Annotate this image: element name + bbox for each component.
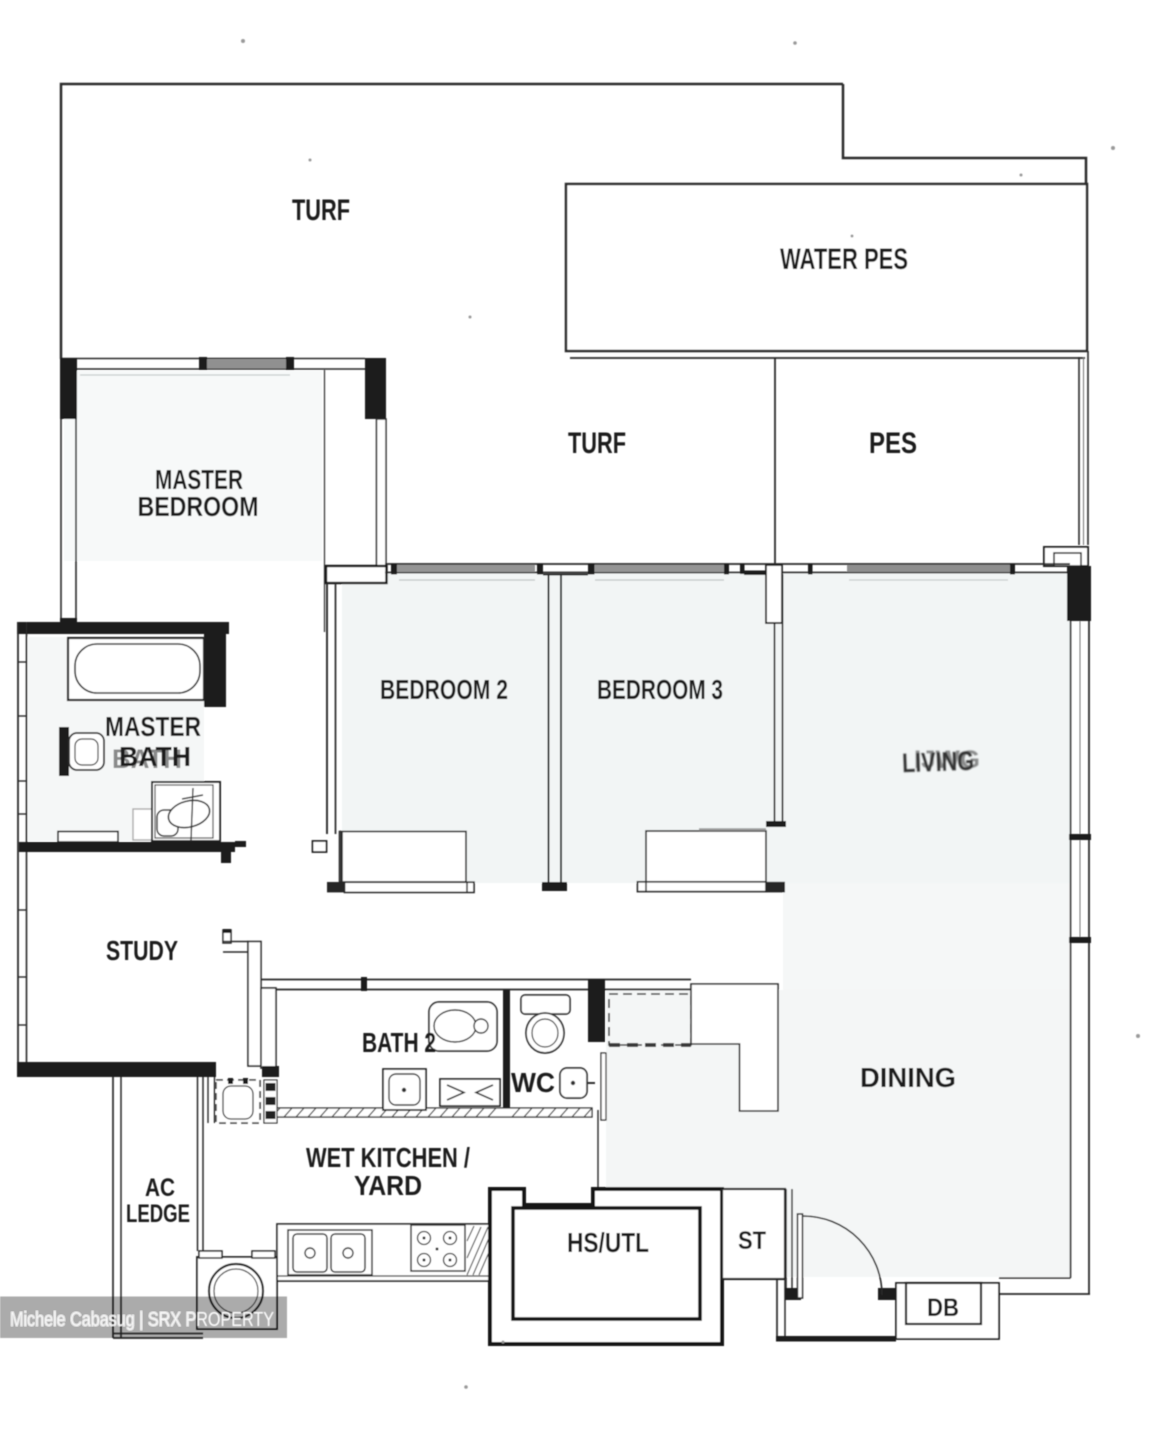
svg-text:AC: AC xyxy=(145,1174,175,1202)
svg-text:YARD: YARD xyxy=(354,1170,422,1201)
svg-text:MASTER: MASTER xyxy=(105,711,201,742)
svg-text:PES: PES xyxy=(869,427,917,460)
svg-text:WC: WC xyxy=(511,1067,555,1098)
svg-text:HS/UTL: HS/UTL xyxy=(567,1227,649,1258)
svg-text:BEDROOM: BEDROOM xyxy=(138,491,259,522)
svg-text:LEDGE: LEDGE xyxy=(126,1200,190,1228)
svg-text:BATH: BATH xyxy=(112,744,182,774)
svg-text:DINING: DINING xyxy=(860,1062,956,1093)
svg-text:WATER PES: WATER PES xyxy=(780,243,908,276)
svg-text:ST: ST xyxy=(738,1227,766,1255)
svg-text:TURF: TURF xyxy=(292,194,350,227)
svg-text:DB: DB xyxy=(927,1294,959,1322)
svg-text:BATH 2: BATH 2 xyxy=(362,1027,436,1058)
svg-text:TURF: TURF xyxy=(568,427,626,460)
svg-text:WET KITCHEN /: WET KITCHEN / xyxy=(306,1142,470,1173)
svg-text:BEDROOM 2: BEDROOM 2 xyxy=(380,674,508,705)
svg-text:IJWG: IJWG xyxy=(914,746,980,774)
svg-text:Michele Cabasug | SRX PROPERTY: Michele Cabasug | SRX PROPERTY xyxy=(10,1308,274,1331)
svg-text:STUDY: STUDY xyxy=(106,935,178,966)
svg-text:BEDROOM 3: BEDROOM 3 xyxy=(597,674,723,705)
